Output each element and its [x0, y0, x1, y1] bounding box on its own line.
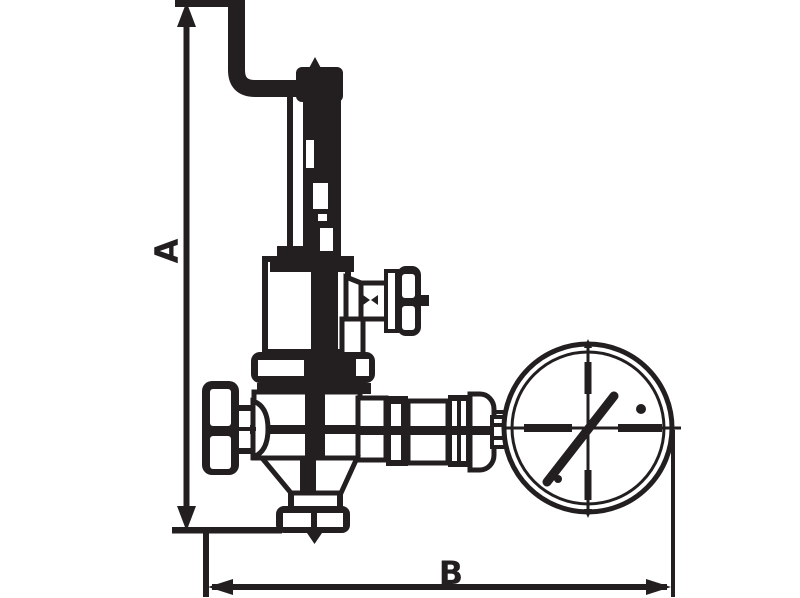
inlet-pipe-elbow [237, 3, 304, 89]
bonnet-left-wall [287, 96, 293, 252]
cock-stem-flange [386, 271, 397, 331]
side-cock-t-handle [342, 266, 429, 355]
adjusting-cap [296, 57, 343, 102]
flange-tip [307, 533, 322, 544]
outlet-axis-line [358, 426, 494, 435]
housing-top-band [270, 256, 354, 272]
t-handle-tip [421, 295, 429, 306]
dial-screw-icon [554, 475, 562, 483]
dim-b-arrow-left-icon [208, 579, 233, 595]
housing-stem-band [311, 270, 338, 354]
dim-b-arrow-right-icon [646, 579, 671, 595]
pressure-gauge [504, 339, 681, 518]
dim-b-label: B [439, 554, 463, 592]
pipe-path [237, 3, 304, 89]
valve-technical-drawing: A [0, 0, 800, 598]
dial-screw-icon [636, 404, 646, 414]
drawing-canvas: A [0, 0, 800, 598]
dim-a-bottom-extension-line [172, 527, 282, 534]
dim-a-label: A [148, 238, 186, 263]
diaphragm-flange [251, 352, 375, 394]
cock-down-pipe [342, 319, 363, 355]
bonnet-stem [277, 96, 341, 260]
outlet-union [358, 394, 509, 470]
stem-axis-line [239, 427, 256, 431]
